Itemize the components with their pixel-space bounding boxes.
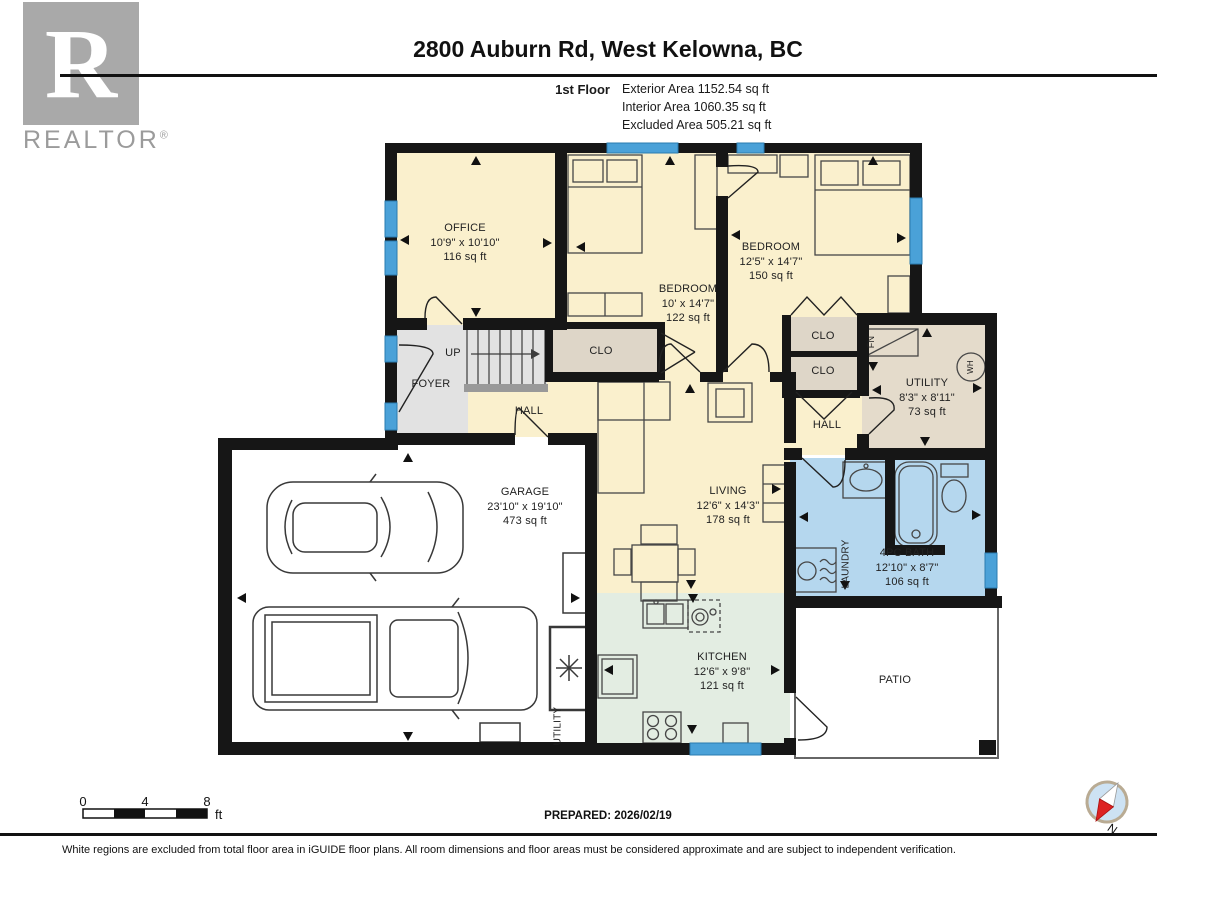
floor-plan-page: R REALTOR® 2800 Auburn Rd, West Kelowna,… xyxy=(0,0,1216,912)
label-hall-left: HALL xyxy=(515,404,543,418)
room-label-utility: UTILITY 8'3" x 8'11" 73 sq ft xyxy=(899,376,955,420)
label-clo-top: CLO xyxy=(811,329,834,343)
fan-icon xyxy=(556,655,582,681)
floor-plan-graphics xyxy=(0,0,1216,912)
window xyxy=(737,143,764,153)
car xyxy=(267,474,463,581)
floor-label: 1st Floor xyxy=(400,82,610,97)
header-divider xyxy=(60,74,1157,77)
kitchen-floor xyxy=(590,593,790,748)
label-clo-bottom: CLO xyxy=(811,364,834,378)
page-title: 2800 Auburn Rd, West Kelowna, BC xyxy=(0,36,1216,63)
window xyxy=(690,743,761,755)
scale-tick-8: 8 xyxy=(203,794,210,809)
window xyxy=(385,336,397,362)
room-label-kitchen: KITCHEN 12'6" x 9'8" 121 sq ft xyxy=(694,650,751,694)
garage-box xyxy=(480,723,520,742)
window xyxy=(607,143,678,153)
compass-icon xyxy=(1079,773,1136,831)
scale-tick-4: 4 xyxy=(141,794,148,809)
window xyxy=(985,553,997,588)
label-up: UP xyxy=(445,346,461,360)
stairs-landing xyxy=(464,384,548,392)
window xyxy=(385,241,397,275)
truck xyxy=(253,598,537,719)
label-laundry: LAUNDRY xyxy=(840,539,853,588)
label-foyer: FOYER xyxy=(412,377,451,391)
footer-divider xyxy=(0,833,1157,836)
room-label-office: OFFICE 10'9" x 10'10" 116 sq ft xyxy=(430,221,499,265)
window xyxy=(385,201,397,237)
label-furnace: FN xyxy=(866,336,878,348)
label-clo-mid: CLO xyxy=(589,344,612,358)
label-hall-right: HALL xyxy=(813,418,841,432)
room-label-bath: 4PC BATH 12'10" x 8'7" 106 sq ft xyxy=(876,546,939,590)
scale-unit: ft xyxy=(215,807,222,822)
room-label-bedroom-middle: BEDROOM 10' x 14'7" 122 sq ft xyxy=(659,282,717,326)
room-label-bedroom-right: BEDROOM 12'5" x 14'7" 150 sq ft xyxy=(740,240,803,284)
scale-bar xyxy=(83,809,207,818)
window xyxy=(385,403,397,430)
scale-tick-0: 0 xyxy=(79,794,86,809)
label-patio: PATIO xyxy=(879,673,911,687)
room-label-living: LIVING 12'6" x 14'3" 178 sq ft xyxy=(697,484,760,528)
window xyxy=(910,198,922,264)
label-utility-garage: UTILITY xyxy=(552,707,565,746)
room-label-garage: GARAGE 23'10" x 19'10" 473 sq ft xyxy=(487,485,563,529)
living-floor xyxy=(590,375,792,597)
patio-post xyxy=(979,740,996,755)
label-water-heater: WH xyxy=(966,360,976,374)
bedroom-right-lower-floor xyxy=(723,325,785,380)
